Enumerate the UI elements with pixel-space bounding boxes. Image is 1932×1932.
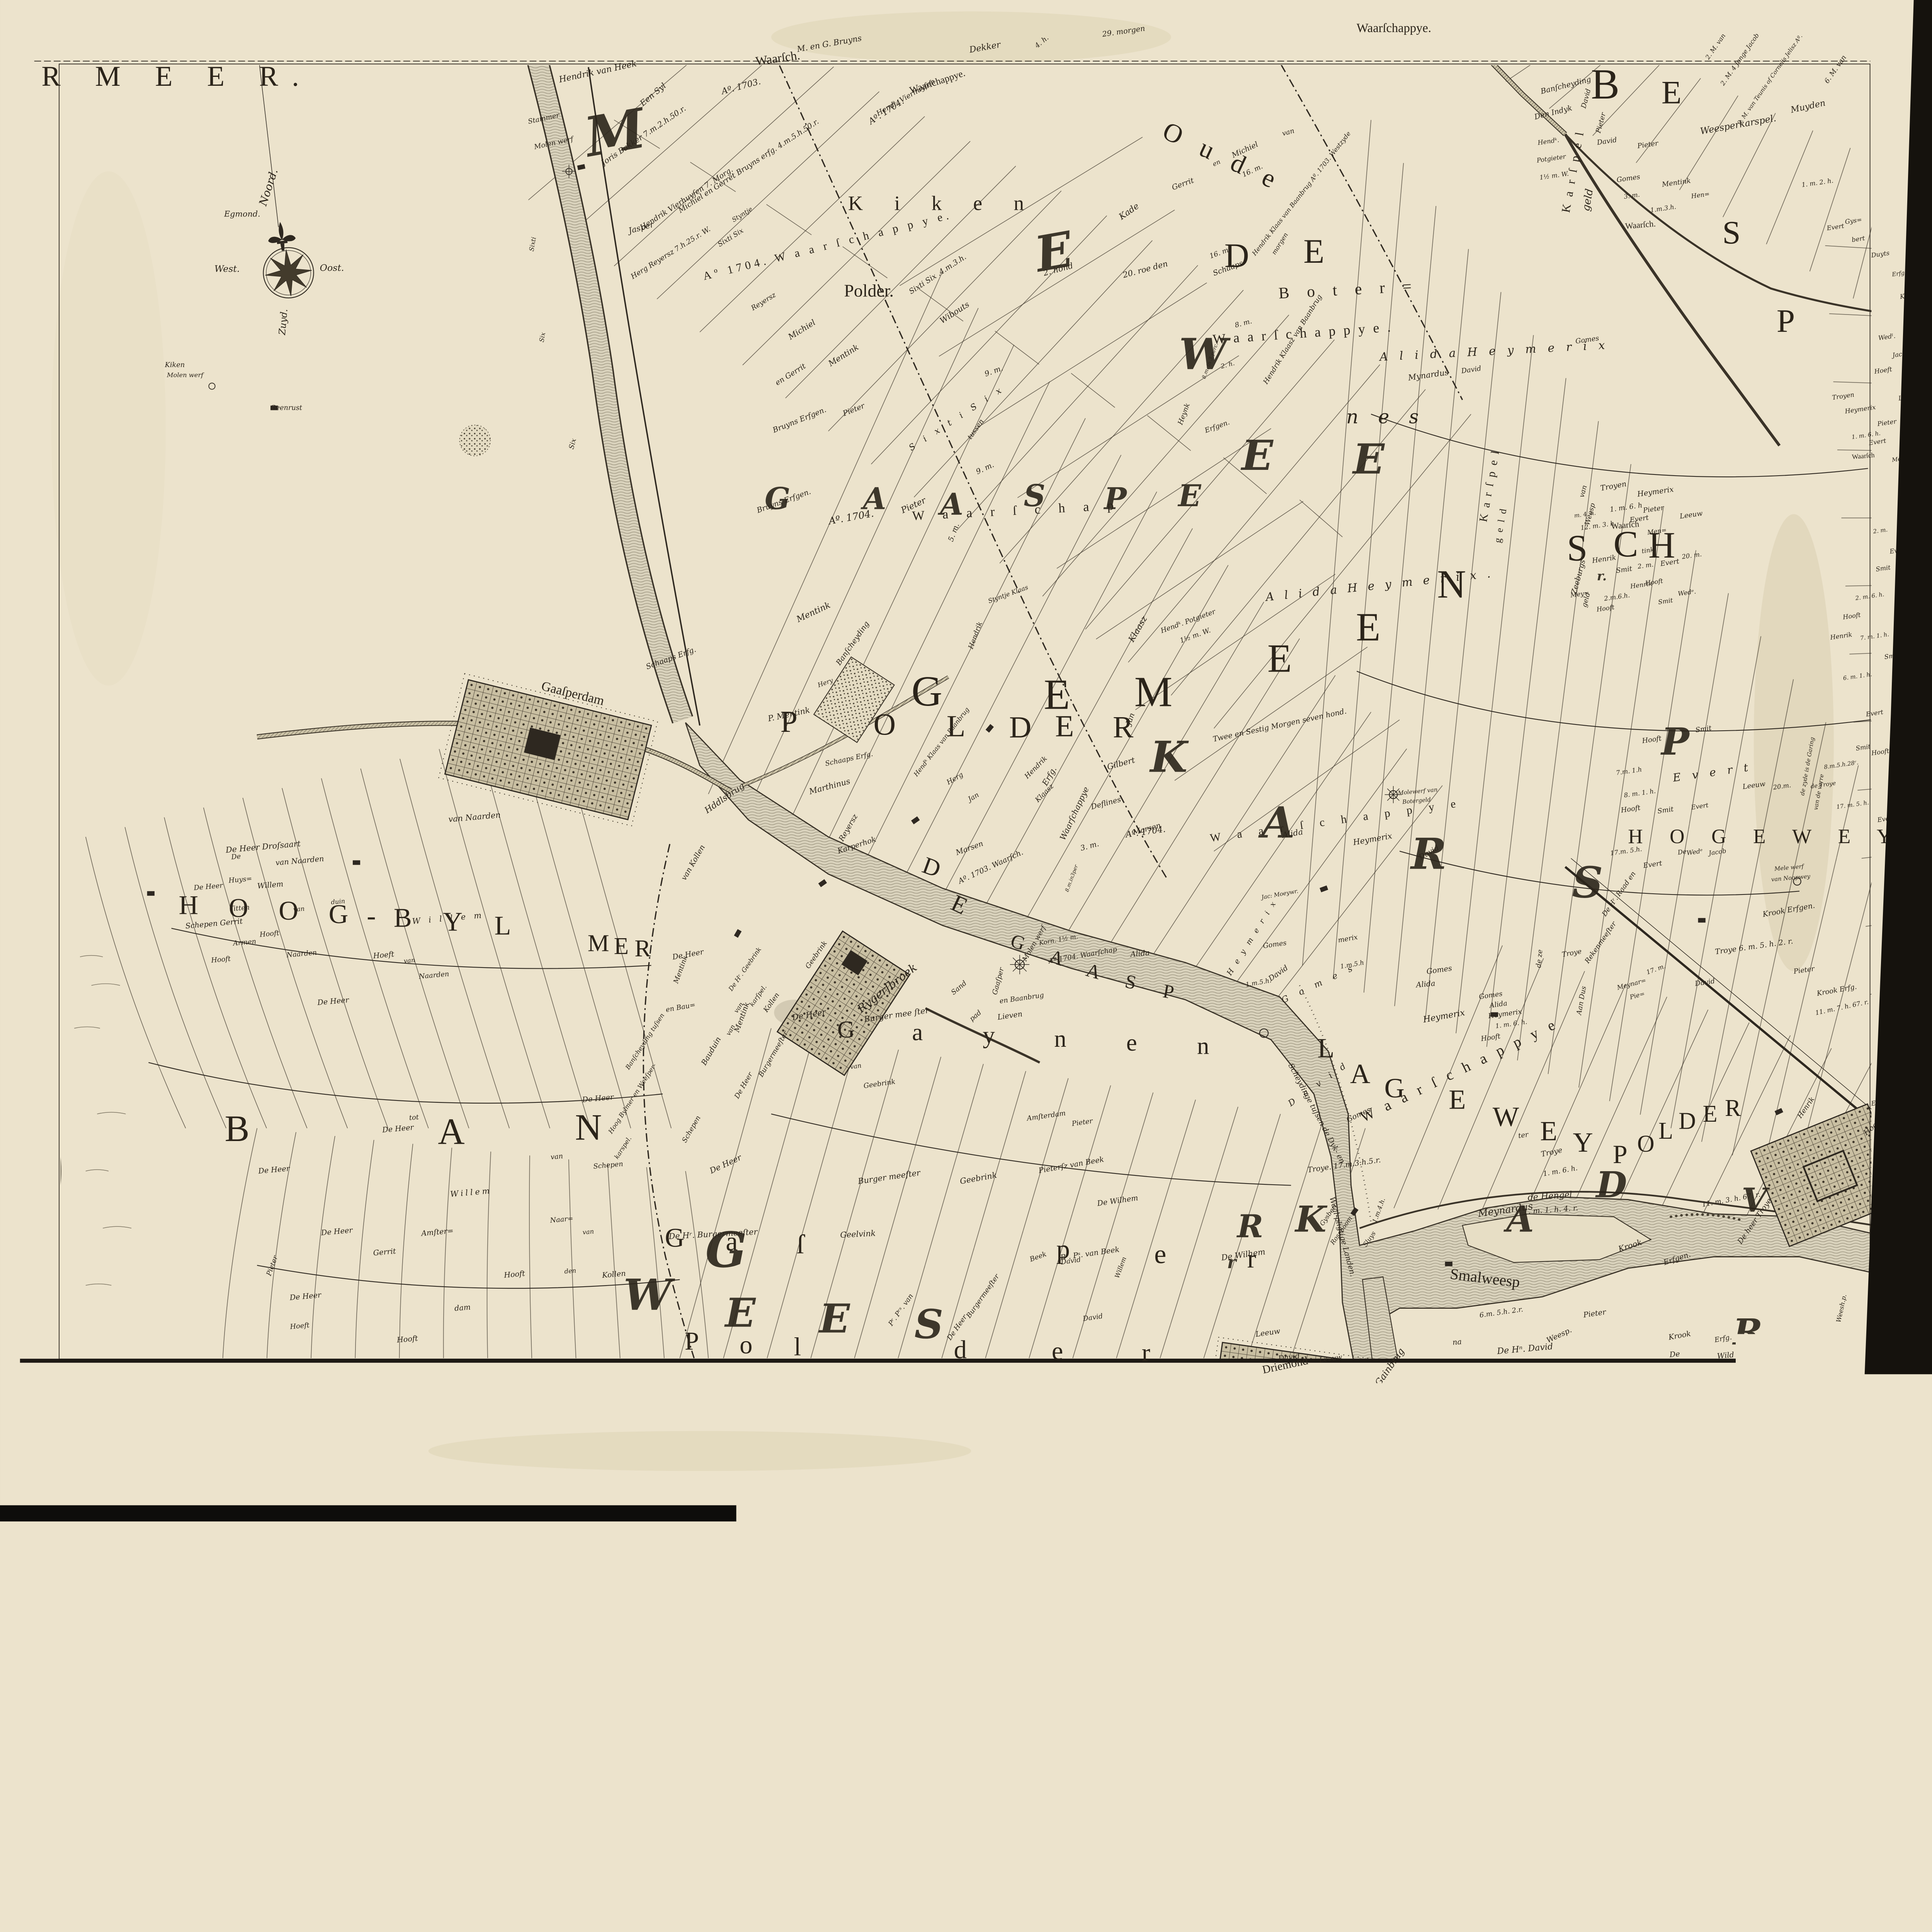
- map-label: r: [1227, 1252, 1238, 1272]
- map-label: L: [1658, 1118, 1673, 1144]
- map-label: Molen werf: [167, 371, 204, 379]
- map-label: B: [1591, 60, 1619, 108]
- map-svg: R M E E R.Noord.West.Oost.Zuyd.Egmond.Ki…: [0, 0, 1932, 1505]
- map-label: Hooft: [503, 1269, 526, 1280]
- map-label: r: [1247, 1244, 1256, 1274]
- map-label: P: [1777, 303, 1795, 339]
- map-label: West.: [214, 264, 240, 274]
- map-label: E: [1267, 637, 1292, 681]
- map-label: O: [873, 707, 896, 742]
- map-label: E: [1055, 709, 1074, 743]
- map-label: S: [1572, 858, 1603, 908]
- map-label: O: [279, 896, 298, 926]
- map-label: r: [1142, 1338, 1150, 1367]
- map-label: G: [329, 899, 349, 929]
- grove-circle: [459, 425, 490, 456]
- map-label: Geelvink: [840, 1228, 876, 1240]
- map-label: G: [912, 667, 942, 715]
- map-label: l: [794, 1333, 801, 1361]
- map-label: Oost.: [320, 262, 344, 273]
- map-label: W: [624, 1270, 675, 1320]
- map-label: e: [1052, 1337, 1063, 1366]
- map-label: a: [912, 1019, 923, 1046]
- map-label: Y: [443, 906, 463, 937]
- map-label: Alida: [1415, 979, 1436, 989]
- map-label: P: [1613, 1139, 1628, 1169]
- map-label: D: [1679, 1108, 1696, 1134]
- map-label: van: [550, 1153, 563, 1162]
- map-label: Geenrust: [270, 404, 303, 412]
- house-icon: [1698, 918, 1706, 923]
- map-label: Polder.: [844, 281, 894, 300]
- map-label: A: [1503, 1198, 1534, 1240]
- map-label: n: [1054, 1025, 1066, 1052]
- map-label: ter: [1518, 1131, 1529, 1140]
- map-label: O: [1637, 1131, 1655, 1157]
- map-label: E: [1303, 233, 1324, 270]
- map-label: -: [367, 901, 376, 931]
- map-label: M: [1134, 668, 1173, 715]
- map-label: S: [1722, 214, 1740, 251]
- map-label: L: [1317, 1032, 1334, 1064]
- map-label: N: [575, 1106, 602, 1148]
- map-label: van: [582, 1228, 594, 1236]
- map-label: De: [231, 853, 241, 861]
- map-label: E: [1540, 1115, 1557, 1146]
- map-label: E: [1240, 431, 1274, 480]
- map-label: K i k e n: [848, 192, 1037, 214]
- house-icon: [147, 891, 155, 896]
- map-label: G: [665, 1223, 685, 1253]
- map-label: E: [1662, 75, 1682, 111]
- map-label: n e s: [1346, 406, 1425, 428]
- map-label: Alida: [1129, 948, 1150, 959]
- map-label: O: [229, 893, 248, 923]
- map-label: E: [1352, 435, 1385, 484]
- map-label: E: [1177, 478, 1202, 514]
- map-label: B: [225, 1108, 250, 1149]
- map-label: De: [1669, 1349, 1680, 1359]
- map-label: Hooft: [396, 1334, 418, 1345]
- house-icon: [353, 860, 360, 865]
- map-label: De: [1677, 848, 1687, 856]
- map-label: van: [850, 1062, 862, 1071]
- map-label: R: [1236, 1208, 1264, 1245]
- map-label: R M E E R.: [41, 60, 313, 92]
- map-label: y: [983, 1022, 995, 1049]
- map-label: A: [438, 1111, 464, 1152]
- map-label: E: [1449, 1084, 1466, 1115]
- map-label: Egmond.: [224, 209, 260, 218]
- scanned-map-page: R M E E R.Noord.West.Oost.Zuyd.Egmond.Ki…: [0, 0, 1932, 1505]
- map-label: R: [634, 935, 651, 962]
- map-label: E: [1356, 605, 1380, 649]
- map-label: E: [614, 932, 629, 959]
- map-label: M: [578, 96, 651, 170]
- map-label: na: [1452, 1337, 1462, 1347]
- map-label: tot: [409, 1114, 419, 1122]
- map-label: P: [685, 1327, 699, 1355]
- map-label: H O G E W E Y: [1628, 825, 1902, 848]
- map-label: P: [1660, 720, 1690, 764]
- map-label: Hoeft: [372, 949, 395, 960]
- map-label: S: [915, 1301, 944, 1348]
- map-label: den: [564, 1267, 577, 1275]
- map-label: Zuyd.: [277, 308, 290, 336]
- map-label: W: [1493, 1101, 1519, 1132]
- map-label: R: [1725, 1095, 1741, 1121]
- map-label: a: [726, 1226, 738, 1257]
- map-label: H: [179, 890, 199, 920]
- map-label: van: [403, 956, 415, 964]
- map-label: dam: [454, 1303, 471, 1313]
- map-label: Wild: [1717, 1350, 1735, 1361]
- map-label: Waarſchappye.: [1357, 21, 1431, 35]
- map-label: G: [1384, 1072, 1405, 1104]
- map-label: K: [1294, 1198, 1328, 1240]
- map-label: E: [1703, 1101, 1718, 1127]
- map-label: D: [1009, 711, 1032, 745]
- map-label: D: [1595, 1164, 1627, 1206]
- map-label: E: [724, 1290, 757, 1337]
- map-label: K: [1149, 732, 1189, 782]
- map-label: o: [740, 1331, 752, 1359]
- map-label: E: [818, 1295, 851, 1342]
- map-label: G: [837, 1016, 855, 1043]
- map-label: r.: [1597, 568, 1607, 583]
- map-label: M: [588, 930, 609, 957]
- map-label: de ze: [1535, 949, 1544, 968]
- map-label: R: [1732, 1311, 1763, 1353]
- map-label: Y: [1573, 1126, 1593, 1158]
- map-label: e: [1154, 1239, 1166, 1269]
- map-label: L: [495, 911, 511, 941]
- map-label: p: [1056, 1234, 1070, 1264]
- map-label: e: [1126, 1029, 1137, 1056]
- map-label: A: [1350, 1058, 1370, 1089]
- map-label: B: [394, 903, 412, 933]
- map-label: n: [1197, 1032, 1209, 1060]
- map-label: d: [954, 1336, 967, 1364]
- map-label: Kiken: [165, 361, 185, 369]
